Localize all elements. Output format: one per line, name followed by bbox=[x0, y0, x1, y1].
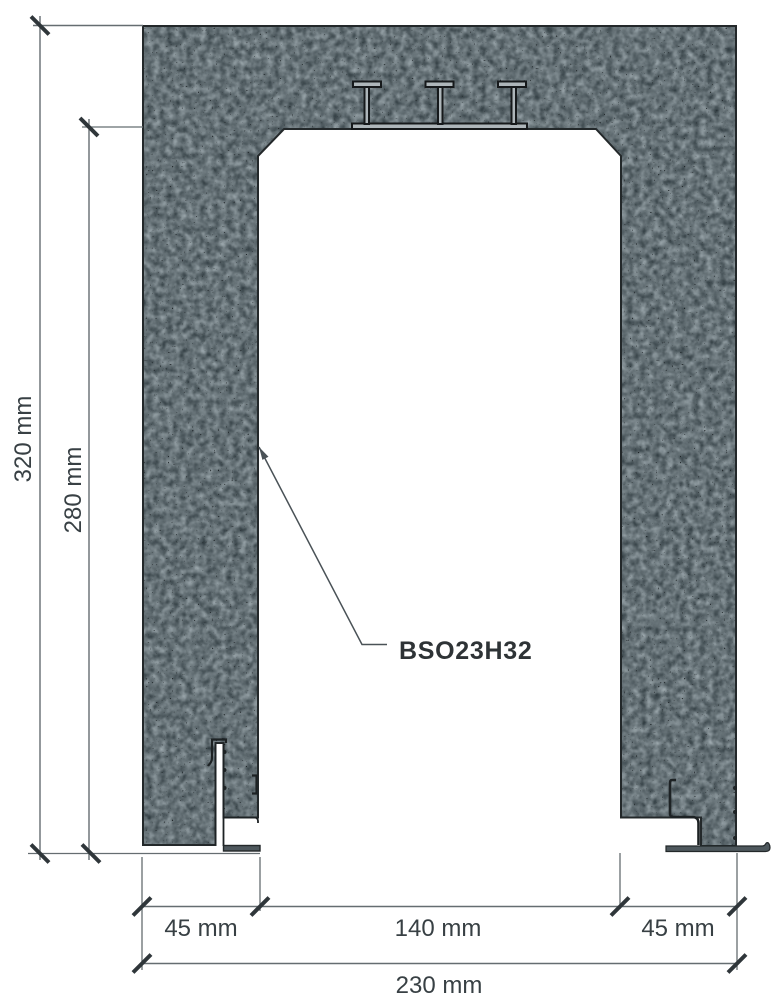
svg-text:320 mm: 320 mm bbox=[10, 396, 37, 483]
svg-text:280 mm: 280 mm bbox=[60, 447, 87, 534]
svg-text:45 mm: 45 mm bbox=[164, 915, 237, 942]
svg-text:230 mm: 230 mm bbox=[396, 972, 483, 999]
svg-text:BSO23H32: BSO23H32 bbox=[399, 637, 532, 665]
svg-text:140 mm: 140 mm bbox=[395, 915, 482, 942]
svg-text:45 mm: 45 mm bbox=[641, 915, 714, 942]
